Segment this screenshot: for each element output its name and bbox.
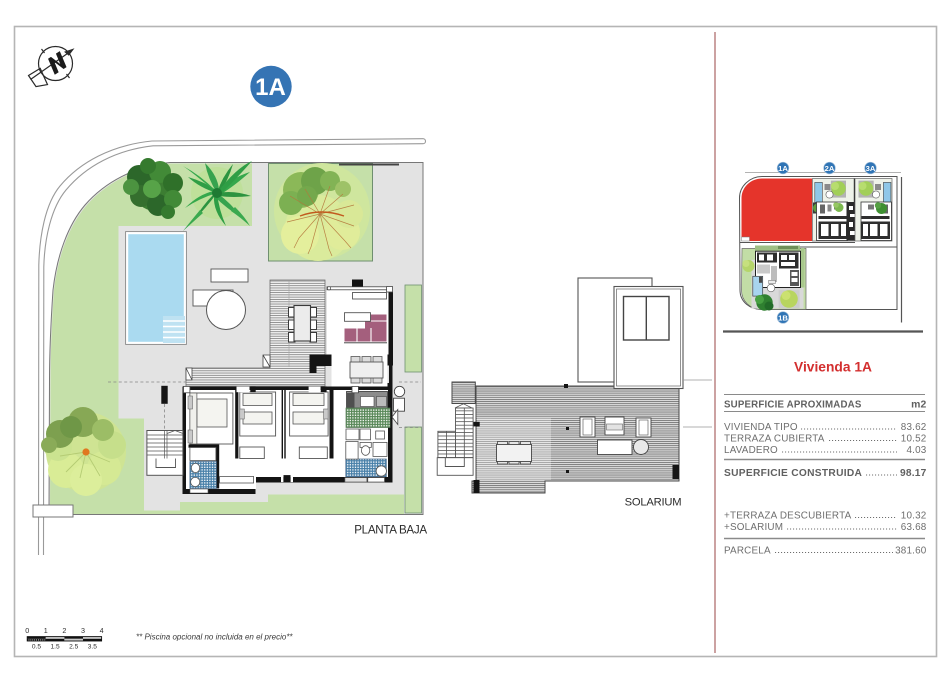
svg-text:SUPERFICIE APROXIMADAS: SUPERFICIE APROXIMADAS	[724, 400, 862, 411]
svg-text:2A: 2A	[825, 164, 835, 173]
svg-text:SUPERFICIE CONSTRUIDA: SUPERFICIE CONSTRUIDA	[724, 468, 863, 479]
svg-text:1: 1	[44, 626, 48, 635]
svg-text:TERRAZA CUBIERTA: TERRAZA CUBIERTA	[724, 434, 825, 445]
svg-text:0.5: 0.5	[32, 644, 41, 651]
svg-text:1B: 1B	[778, 313, 788, 322]
svg-text:381.60: 381.60	[895, 546, 927, 557]
svg-text:LAVADERO: LAVADERO	[724, 445, 778, 456]
svg-text:3.5: 3.5	[88, 644, 97, 651]
svg-text:1A: 1A	[778, 164, 788, 173]
svg-text:3A: 3A	[866, 164, 876, 173]
svg-text:63.68: 63.68	[901, 522, 927, 533]
svg-text:10.52: 10.52	[901, 434, 927, 445]
svg-text:Vivienda 1A: Vivienda 1A	[794, 360, 872, 375]
svg-text:m2: m2	[911, 400, 926, 411]
svg-text:+SOLARIUM: +SOLARIUM	[724, 522, 783, 533]
svg-text:4: 4	[100, 626, 104, 635]
svg-text:3: 3	[81, 626, 85, 635]
svg-text:1.5: 1.5	[51, 644, 60, 651]
svg-text:** Piscina opcional no incluid: ** Piscina opcional no incluida en el pr…	[136, 633, 293, 642]
svg-text:0: 0	[25, 626, 29, 635]
svg-text:2.5: 2.5	[69, 644, 78, 651]
svg-text:+TERRAZA DESCUBIERTA: +TERRAZA DESCUBIERTA	[724, 511, 852, 522]
svg-text:PLANTA BAJA: PLANTA BAJA	[354, 524, 427, 537]
svg-text:2: 2	[62, 626, 66, 635]
svg-text:SOLARIUM: SOLARIUM	[625, 497, 682, 509]
svg-text:4.03: 4.03	[906, 445, 926, 456]
svg-text:VIVIENDA TIPO: VIVIENDA TIPO	[724, 422, 798, 433]
svg-text:98.17: 98.17	[900, 468, 927, 479]
svg-text:83.62: 83.62	[901, 422, 927, 433]
svg-text:10.32: 10.32	[901, 511, 927, 522]
svg-text:PARCELA: PARCELA	[724, 546, 771, 557]
svg-text:1A: 1A	[255, 74, 286, 101]
